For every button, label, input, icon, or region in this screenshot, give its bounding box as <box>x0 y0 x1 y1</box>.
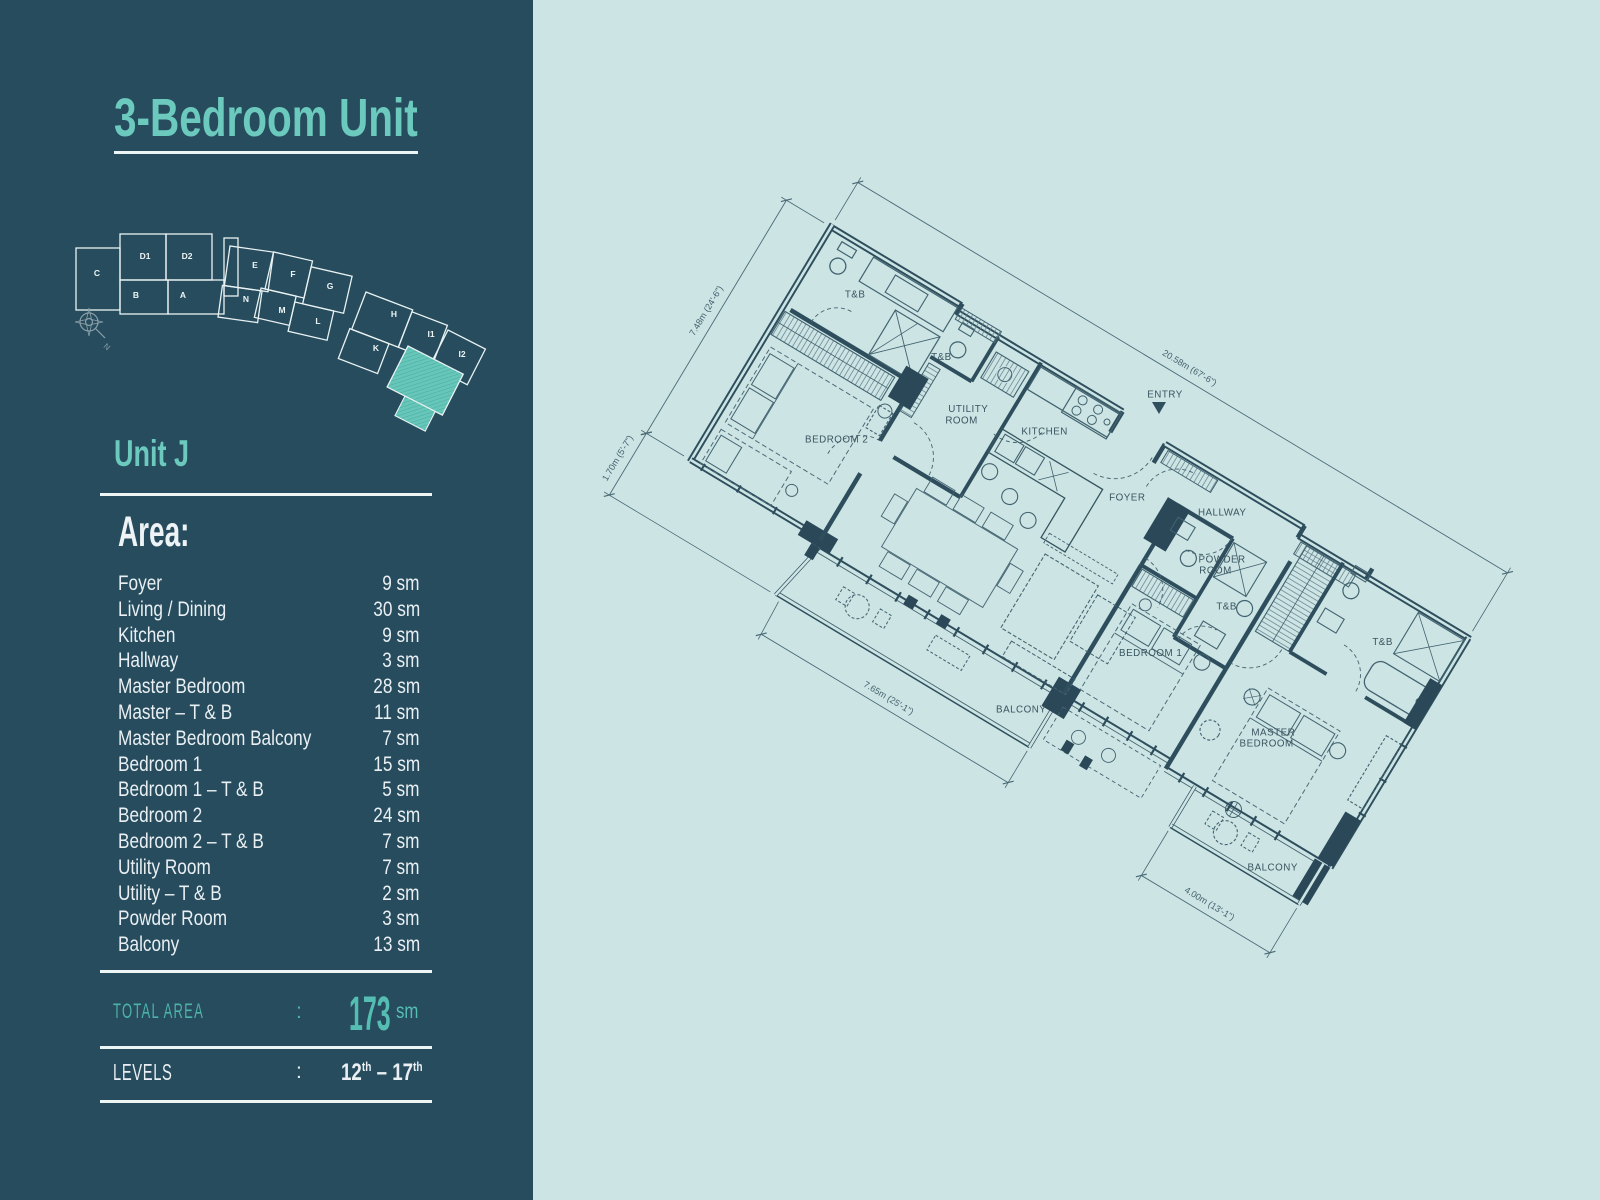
svg-text:E: E <box>252 260 258 270</box>
svg-text:T&B: T&B <box>845 290 866 301</box>
svg-text:H: H <box>391 309 397 319</box>
svg-text:T&B: T&B <box>1216 601 1237 612</box>
svg-text:B: B <box>133 290 139 300</box>
svg-text:ROOM: ROOM <box>1199 566 1231 577</box>
svg-text:F: F <box>290 269 295 279</box>
svg-text:BALCONY: BALCONY <box>996 704 1046 715</box>
svg-text:BEDROOM 2: BEDROOM 2 <box>805 435 868 446</box>
svg-text:UTILITY: UTILITY <box>948 404 988 415</box>
svg-text:T&B: T&B <box>1372 637 1393 648</box>
svg-text:K: K <box>373 343 380 353</box>
svg-text:BALCONY: BALCONY <box>1248 862 1298 873</box>
svg-text:N: N <box>102 342 112 353</box>
svg-text:POWDER: POWDER <box>1199 554 1246 565</box>
svg-text:A: A <box>180 290 186 300</box>
svg-text:D2: D2 <box>182 251 193 261</box>
svg-text:KITCHEN: KITCHEN <box>1021 427 1068 438</box>
svg-text:G: G <box>327 281 334 291</box>
svg-text:N: N <box>243 294 249 304</box>
svg-text:1.70m (5'-7"): 1.70m (5'-7") <box>600 433 635 482</box>
svg-text:HALLWAY: HALLWAY <box>1198 508 1247 519</box>
svg-text:T&B: T&B <box>931 352 952 363</box>
svg-text:M: M <box>278 305 285 315</box>
svg-text:I2: I2 <box>458 349 465 359</box>
svg-text:I1: I1 <box>427 329 434 339</box>
svg-text:ENTRY: ENTRY <box>1147 389 1183 400</box>
svg-text:FOYER: FOYER <box>1109 493 1145 504</box>
svg-text:C: C <box>94 268 100 278</box>
svg-text:D1: D1 <box>140 251 151 261</box>
svg-text:L: L <box>315 316 320 326</box>
svg-text:7.48m (24'-6"): 7.48m (24'-6") <box>687 284 725 338</box>
svg-text:MASTER: MASTER <box>1251 727 1295 738</box>
svg-text:BEDROOM 1: BEDROOM 1 <box>1119 648 1182 659</box>
svg-text:BEDROOM: BEDROOM <box>1240 739 1294 750</box>
svg-text:ROOM: ROOM <box>945 415 977 426</box>
